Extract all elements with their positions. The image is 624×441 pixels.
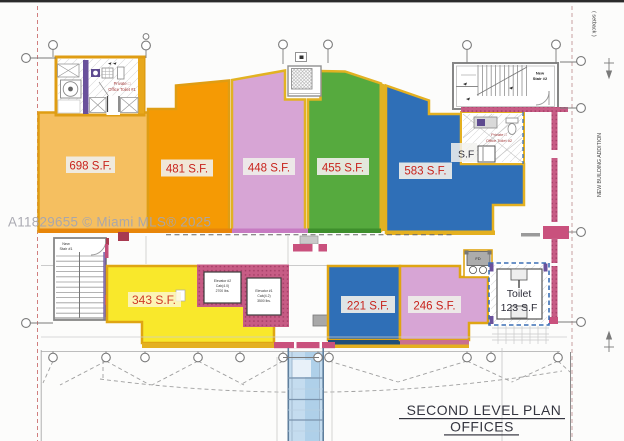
svg-text:Private □: Private □ — [114, 81, 131, 86]
svg-text:NEW BUILDING ADDITION: NEW BUILDING ADDITION — [597, 133, 603, 197]
svg-text:Toilet: Toilet — [507, 288, 532, 300]
svg-text:Stair #2: Stair #2 — [533, 76, 548, 81]
svg-text:Office Toilet #2: Office Toilet #2 — [486, 138, 513, 143]
svg-text:Elevator #2: Elevator #2 — [214, 279, 231, 283]
svg-text:698 S.F.: 698 S.F. — [69, 161, 111, 173]
svg-text:3500 lbs.: 3500 lbs. — [257, 299, 271, 303]
svg-text:448 S.F.: 448 S.F. — [248, 163, 290, 175]
svg-text:2700 lbs.: 2700 lbs. — [216, 289, 230, 293]
svg-text:Elevator #1: Elevator #1 — [255, 289, 272, 293]
svg-text:343 S.F.: 343 S.F. — [132, 293, 176, 307]
svg-text:Stair #1: Stair #1 — [59, 247, 72, 251]
svg-text:481 S.F.: 481 S.F. — [166, 164, 208, 176]
svg-text:Office Toilet #1: Office Toilet #1 — [108, 87, 136, 92]
svg-text:New: New — [536, 71, 545, 76]
svg-text:221 S.F.: 221 S.F. — [347, 301, 389, 313]
svg-text:246 S.F.: 246 S.F. — [413, 301, 455, 313]
svg-text:A11829655 © Miami MLS® 2025: A11829655 © Miami MLS® 2025 — [8, 215, 211, 230]
svg-text:SECOND LEVEL PLAN: SECOND LEVEL PLAN — [407, 402, 562, 418]
svg-text:123 S.F: 123 S.F — [501, 302, 538, 314]
svg-text:OFFICES: OFFICES — [450, 419, 514, 435]
svg-text:583 S.F.: 583 S.F. — [404, 166, 446, 178]
svg-text:( setback ): ( setback ) — [591, 11, 597, 37]
svg-text:Cab(4.2): Cab(4.2) — [257, 294, 270, 298]
svg-text:Cab(4.0): Cab(4.0) — [216, 284, 229, 288]
svg-text:New: New — [62, 242, 70, 246]
svg-text:S.F: S.F — [458, 149, 474, 161]
svg-text:FD: FD — [475, 256, 480, 261]
svg-text:455 S.F.: 455 S.F. — [322, 163, 364, 175]
svg-text:Private □: Private □ — [491, 132, 508, 137]
